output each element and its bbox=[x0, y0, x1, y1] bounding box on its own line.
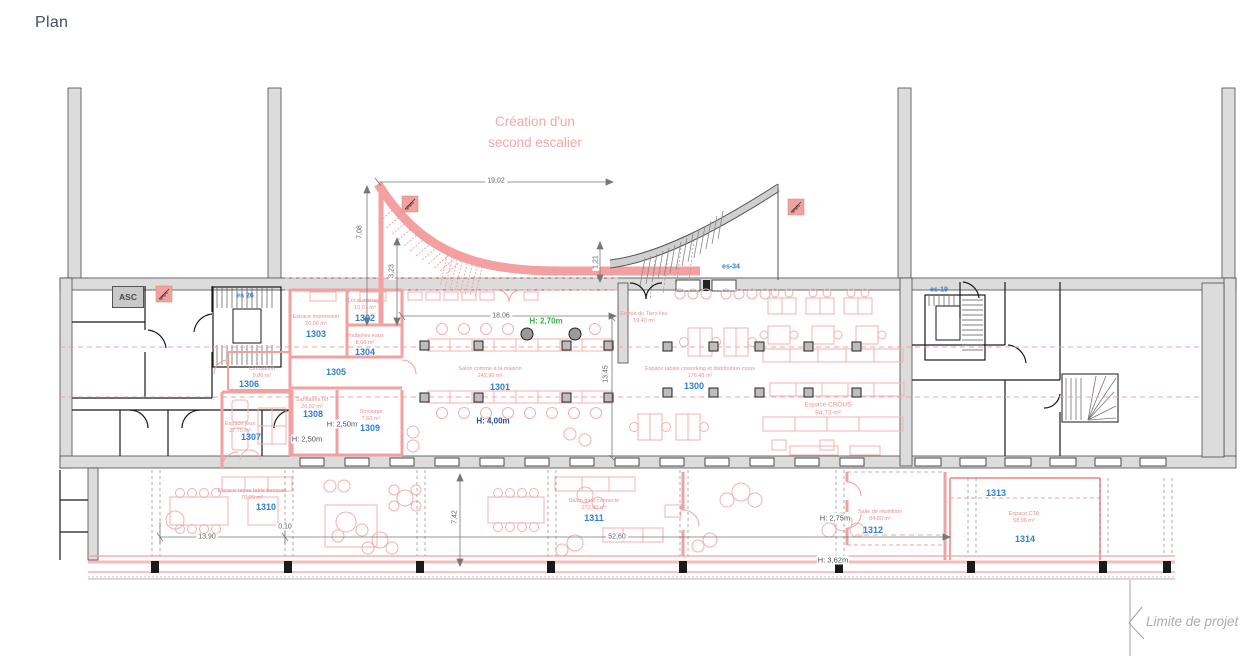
room-number-1305: 1305 bbox=[326, 367, 346, 377]
room-name-1311: Salon gare connecté272,80 m² bbox=[569, 498, 619, 512]
room-number-1303: 1303 bbox=[306, 329, 326, 339]
room-name-1301: Salon comme à la maison242,90 m² bbox=[458, 366, 521, 380]
dim-19-02: 19,02 bbox=[485, 178, 507, 185]
room-number-1300: 1300 bbox=[684, 381, 704, 391]
stair-icon bbox=[788, 199, 804, 215]
room-name-1314: Espace CTA58,96 m² bbox=[1009, 511, 1039, 525]
dim-7-08: 7,08 bbox=[357, 223, 364, 241]
winder-stair bbox=[1062, 374, 1118, 422]
height-h250-a: H: 2,50m bbox=[326, 420, 358, 429]
space-name-entree: Entrée du Tiers lieu19,40 m² bbox=[620, 311, 667, 325]
stair-label-es19: es-19 bbox=[930, 287, 948, 294]
limit-of-project-label: Limite de projet bbox=[1146, 614, 1238, 629]
room-name-1302: Local ménage10,07 m² bbox=[348, 298, 383, 312]
annotation-second-stair: Création d'un second escalier bbox=[488, 112, 582, 154]
stair-label-es26: es 26 bbox=[236, 293, 254, 300]
room-name-1304: Poubelles eaux8,06 m² bbox=[346, 333, 384, 347]
stair-icon bbox=[156, 286, 172, 302]
dim-18-06: 18,06 bbox=[490, 313, 512, 320]
curved-staircase bbox=[378, 184, 778, 325]
room-name-1300: Espace tables coworking et distribution … bbox=[645, 366, 755, 380]
dim-52-60: 52,60 bbox=[606, 534, 628, 541]
page-title: Plan bbox=[35, 14, 68, 32]
room-number-1309: 1309 bbox=[360, 423, 380, 433]
room-number-1311: 1311 bbox=[584, 513, 604, 523]
stair-label-es34: es-34 bbox=[722, 264, 740, 271]
stair-es19 bbox=[925, 295, 985, 360]
furniture bbox=[166, 289, 904, 556]
dim-7-42: 7,42 bbox=[452, 508, 459, 526]
room-number-1306: 1306 bbox=[239, 379, 259, 389]
dim-13-45: 13,45 bbox=[603, 363, 610, 385]
room-number-1310: 1310 bbox=[256, 502, 276, 512]
room-number-1301: 1301 bbox=[490, 382, 510, 392]
height-h275: H: 2,75m bbox=[819, 514, 851, 523]
dim-0-10: 0,10 bbox=[276, 524, 294, 531]
room-number-1304: 1304 bbox=[355, 347, 375, 357]
room-name-1309: Stockage7,60 m² bbox=[360, 409, 383, 423]
stair-icon bbox=[402, 196, 418, 212]
room-number-1314: 1314 bbox=[1015, 534, 1035, 544]
top-wall-dashed-pink bbox=[285, 278, 1100, 545]
room-name-1310: Espace repas table banquet70,29 m² bbox=[218, 488, 287, 502]
room-number-1302: 1302 bbox=[355, 313, 375, 323]
dim-13-90: 13,90 bbox=[196, 534, 218, 541]
height-h270: H: 2,70m bbox=[529, 317, 562, 326]
dim-1-21: 1,21 bbox=[593, 253, 600, 271]
room-name-1303: Espace impression20,06 m² bbox=[293, 314, 339, 328]
floor-plan-drawing bbox=[0, 0, 1260, 661]
room-number-1313: 1313 bbox=[986, 488, 1006, 498]
elevator-label: ASC bbox=[112, 286, 144, 308]
space-name-crous: Espace CROUS94,73 m² bbox=[805, 402, 852, 419]
height-h362: H: 3,62m bbox=[817, 556, 849, 565]
height-h400: H: 4,00m bbox=[476, 417, 509, 426]
room-name-1307: Espace jeux27,75 m² bbox=[225, 421, 255, 435]
room-name-1312: Salle de répétition84,80 m² bbox=[858, 509, 902, 523]
room-name-1306: Circulation9,86 m² bbox=[249, 366, 275, 380]
height-h250-b: H: 2,50m bbox=[291, 435, 323, 444]
annotation-line1: Création d'un bbox=[488, 112, 582, 133]
room-name-1308: Sanitaires h/f26,82 m² bbox=[296, 397, 328, 411]
dim-3-23: 3,23 bbox=[389, 262, 396, 280]
limit-arrow bbox=[1129, 580, 1144, 656]
room-number-1312: 1312 bbox=[863, 525, 883, 535]
annotation-line2: second escalier bbox=[488, 133, 582, 154]
plan-page: Plan Création d'un second escalier ASC e… bbox=[0, 0, 1260, 661]
